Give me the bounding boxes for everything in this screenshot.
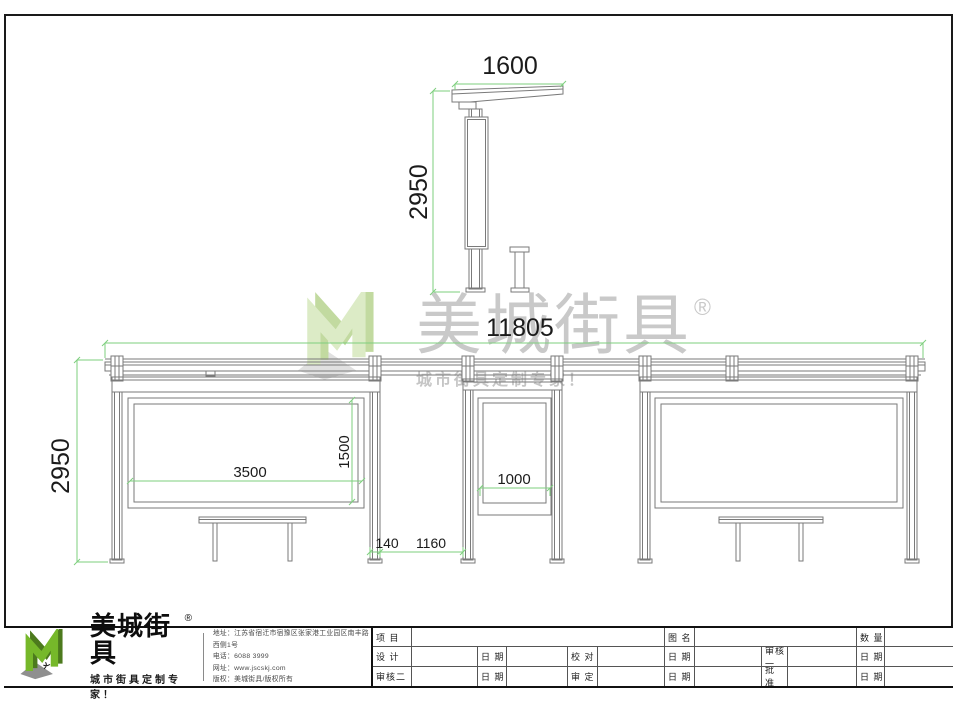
titleblock-review1-value bbox=[788, 647, 857, 666]
right-lightbox bbox=[655, 398, 903, 508]
side-view-structure bbox=[452, 86, 563, 292]
titleblock-proofread-label: 校 对 bbox=[568, 647, 598, 666]
titleblock-drawingname-label: 图 名 bbox=[665, 628, 695, 647]
cad-linework bbox=[0, 0, 960, 704]
titleblock-approve-value bbox=[598, 667, 665, 686]
dim-panel-height: 1500 bbox=[336, 407, 354, 497]
titleblock-quantity-label: 数 量 bbox=[857, 628, 885, 647]
titleblock-date-label: 日 期 bbox=[478, 647, 507, 666]
titleblock-date-value bbox=[507, 667, 568, 686]
titleblock-ratify-label: 批 准 bbox=[762, 667, 788, 686]
dim-post-width: 140 bbox=[367, 535, 407, 551]
titleblock-quantity-value bbox=[885, 628, 953, 647]
titleblock-date-label: 日 期 bbox=[857, 647, 885, 666]
dim-side-width: 1600 bbox=[470, 52, 550, 81]
titleblock-review2-value bbox=[412, 667, 478, 686]
titleblock-date-value bbox=[885, 647, 953, 666]
titleblock-date-label: 日 期 bbox=[665, 667, 695, 686]
titleblock-date-value bbox=[507, 647, 568, 666]
company-tagline: 城市街具定制专家！ bbox=[90, 671, 192, 701]
titleblock-date-value bbox=[695, 647, 762, 666]
titleblock-approve-label: 审 定 bbox=[568, 667, 598, 686]
titleblock-date-label: 日 期 bbox=[665, 647, 695, 666]
dim-total-width: 11805 bbox=[475, 314, 565, 343]
front-view-structure bbox=[105, 356, 925, 563]
titleblock-design-label: 设 计 bbox=[373, 647, 412, 666]
drawing-sheet: { "watermark": { "brand": "美城街具", "reg":… bbox=[0, 0, 960, 704]
dim-mid-panel-width: 1000 bbox=[479, 471, 549, 488]
titleblock-date-value bbox=[885, 667, 953, 686]
company-logo-block: 美城街具 ® 城市街具定制专家！ 地址：江苏省宿迁市宿豫区张家港工业园区南丰路西… bbox=[4, 628, 373, 686]
logo-divider bbox=[203, 633, 204, 681]
left-lightbox bbox=[128, 398, 364, 508]
titleblock-review2-label: 审核二 bbox=[373, 667, 412, 686]
brand-logo-m-icon bbox=[16, 629, 84, 685]
dim-left-panel-width: 3500 bbox=[210, 464, 290, 481]
titleblock-review1-label: 审核一 bbox=[762, 647, 788, 666]
titleblock-date-label: 日 期 bbox=[857, 667, 885, 686]
contact-phone: 电话：6088 3999 bbox=[213, 651, 371, 663]
company-contact-info: 地址：江苏省宿迁市宿豫区张家港工业园区南丰路西侧1号 电话：6088 3999 … bbox=[213, 628, 371, 686]
company-brand-text: 美城街具 bbox=[90, 613, 184, 668]
titleblock-date-label: 日 期 bbox=[478, 667, 507, 686]
titleblock-ratify-value bbox=[788, 667, 857, 686]
middle-panel bbox=[478, 398, 551, 515]
title-block-table: 项 目 图 名 数 量 设 计 日 期 校 对 日 期 审核一 日 期 审核二 … bbox=[373, 628, 953, 686]
registered-mark: ® bbox=[185, 613, 192, 624]
dim-front-height: 2950 bbox=[47, 421, 73, 511]
left-bench bbox=[199, 517, 306, 561]
titleblock-date-value bbox=[695, 667, 762, 686]
base-plates bbox=[110, 559, 919, 563]
sheet-footer: 美城街具 ® 城市街具定制专家！ 地址：江苏省宿迁市宿豫区张家港工业园区南丰路西… bbox=[4, 626, 953, 688]
titleblock-design-value bbox=[412, 647, 478, 666]
titleblock-drawingname-value bbox=[695, 628, 857, 647]
dim-side-height: 2950 bbox=[405, 147, 431, 237]
contact-website: 网址：www.jscskj.com bbox=[213, 663, 371, 675]
titleblock-project-value bbox=[412, 628, 665, 647]
dim-bay-gap: 1160 bbox=[406, 535, 456, 551]
front-view-dimensions bbox=[74, 340, 926, 565]
side-view-dimensions bbox=[430, 81, 566, 295]
titleblock-proofread-value bbox=[598, 647, 665, 666]
contact-copyright: 版权：美城街具/版权所有 bbox=[213, 674, 371, 686]
contact-address: 地址：江苏省宿迁市宿豫区张家港工业园区南丰路西侧1号 bbox=[213, 628, 371, 651]
right-bench bbox=[719, 517, 823, 561]
titleblock-project-label: 项 目 bbox=[373, 628, 412, 647]
